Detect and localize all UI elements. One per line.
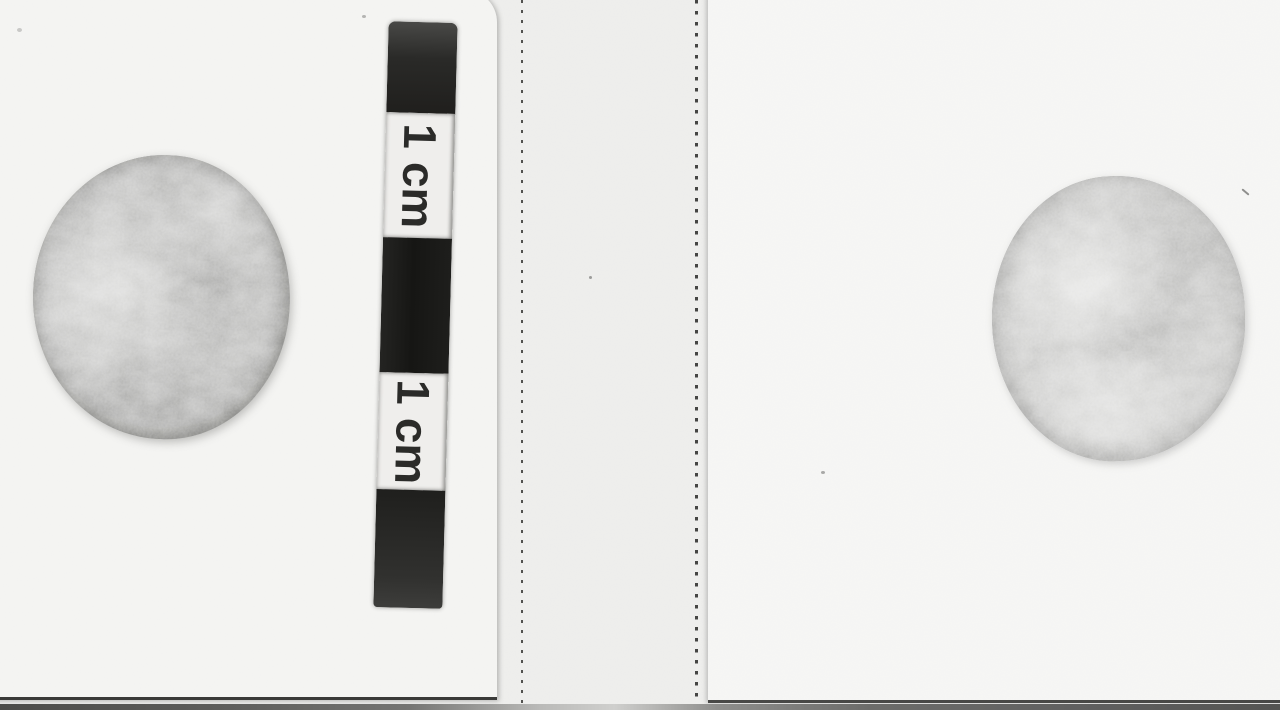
scale-label-upper: 1 cm (395, 123, 444, 229)
perforation-line-left (521, 0, 523, 704)
scale-bar-black-segment-middle (379, 237, 452, 374)
dust-speck (362, 15, 366, 18)
left-paper-sheet: 1 cm 1 cm (0, 0, 497, 700)
dust-speck (821, 471, 825, 474)
left-coin (26, 148, 298, 445)
dust-speck (1241, 188, 1249, 195)
coin-corrosion-texture (987, 172, 1250, 466)
right-coin (987, 172, 1250, 466)
coin-corrosion-texture (26, 148, 298, 445)
right-paper-sheet (708, 0, 1280, 703)
scale-bar: 1 cm 1 cm (373, 21, 457, 609)
scale-bar-white-segment-lower: 1 cm (376, 372, 448, 491)
scale-label-lower: 1 cm (388, 378, 437, 484)
perforation-line-right (695, 0, 698, 704)
coin-grain-texture (987, 172, 1250, 466)
scale-bar-black-segment-bottom (373, 489, 445, 609)
dust-speck (17, 28, 22, 32)
dust-speck (589, 276, 592, 279)
scale-bar-white-segment-upper: 1 cm (383, 112, 455, 239)
scale-bar-black-segment-top (386, 21, 457, 114)
coin-plate-photograph: 1 cm 1 cm (0, 0, 1280, 710)
table-edge-shadow (0, 704, 1280, 710)
coin-grain-texture (26, 148, 298, 445)
